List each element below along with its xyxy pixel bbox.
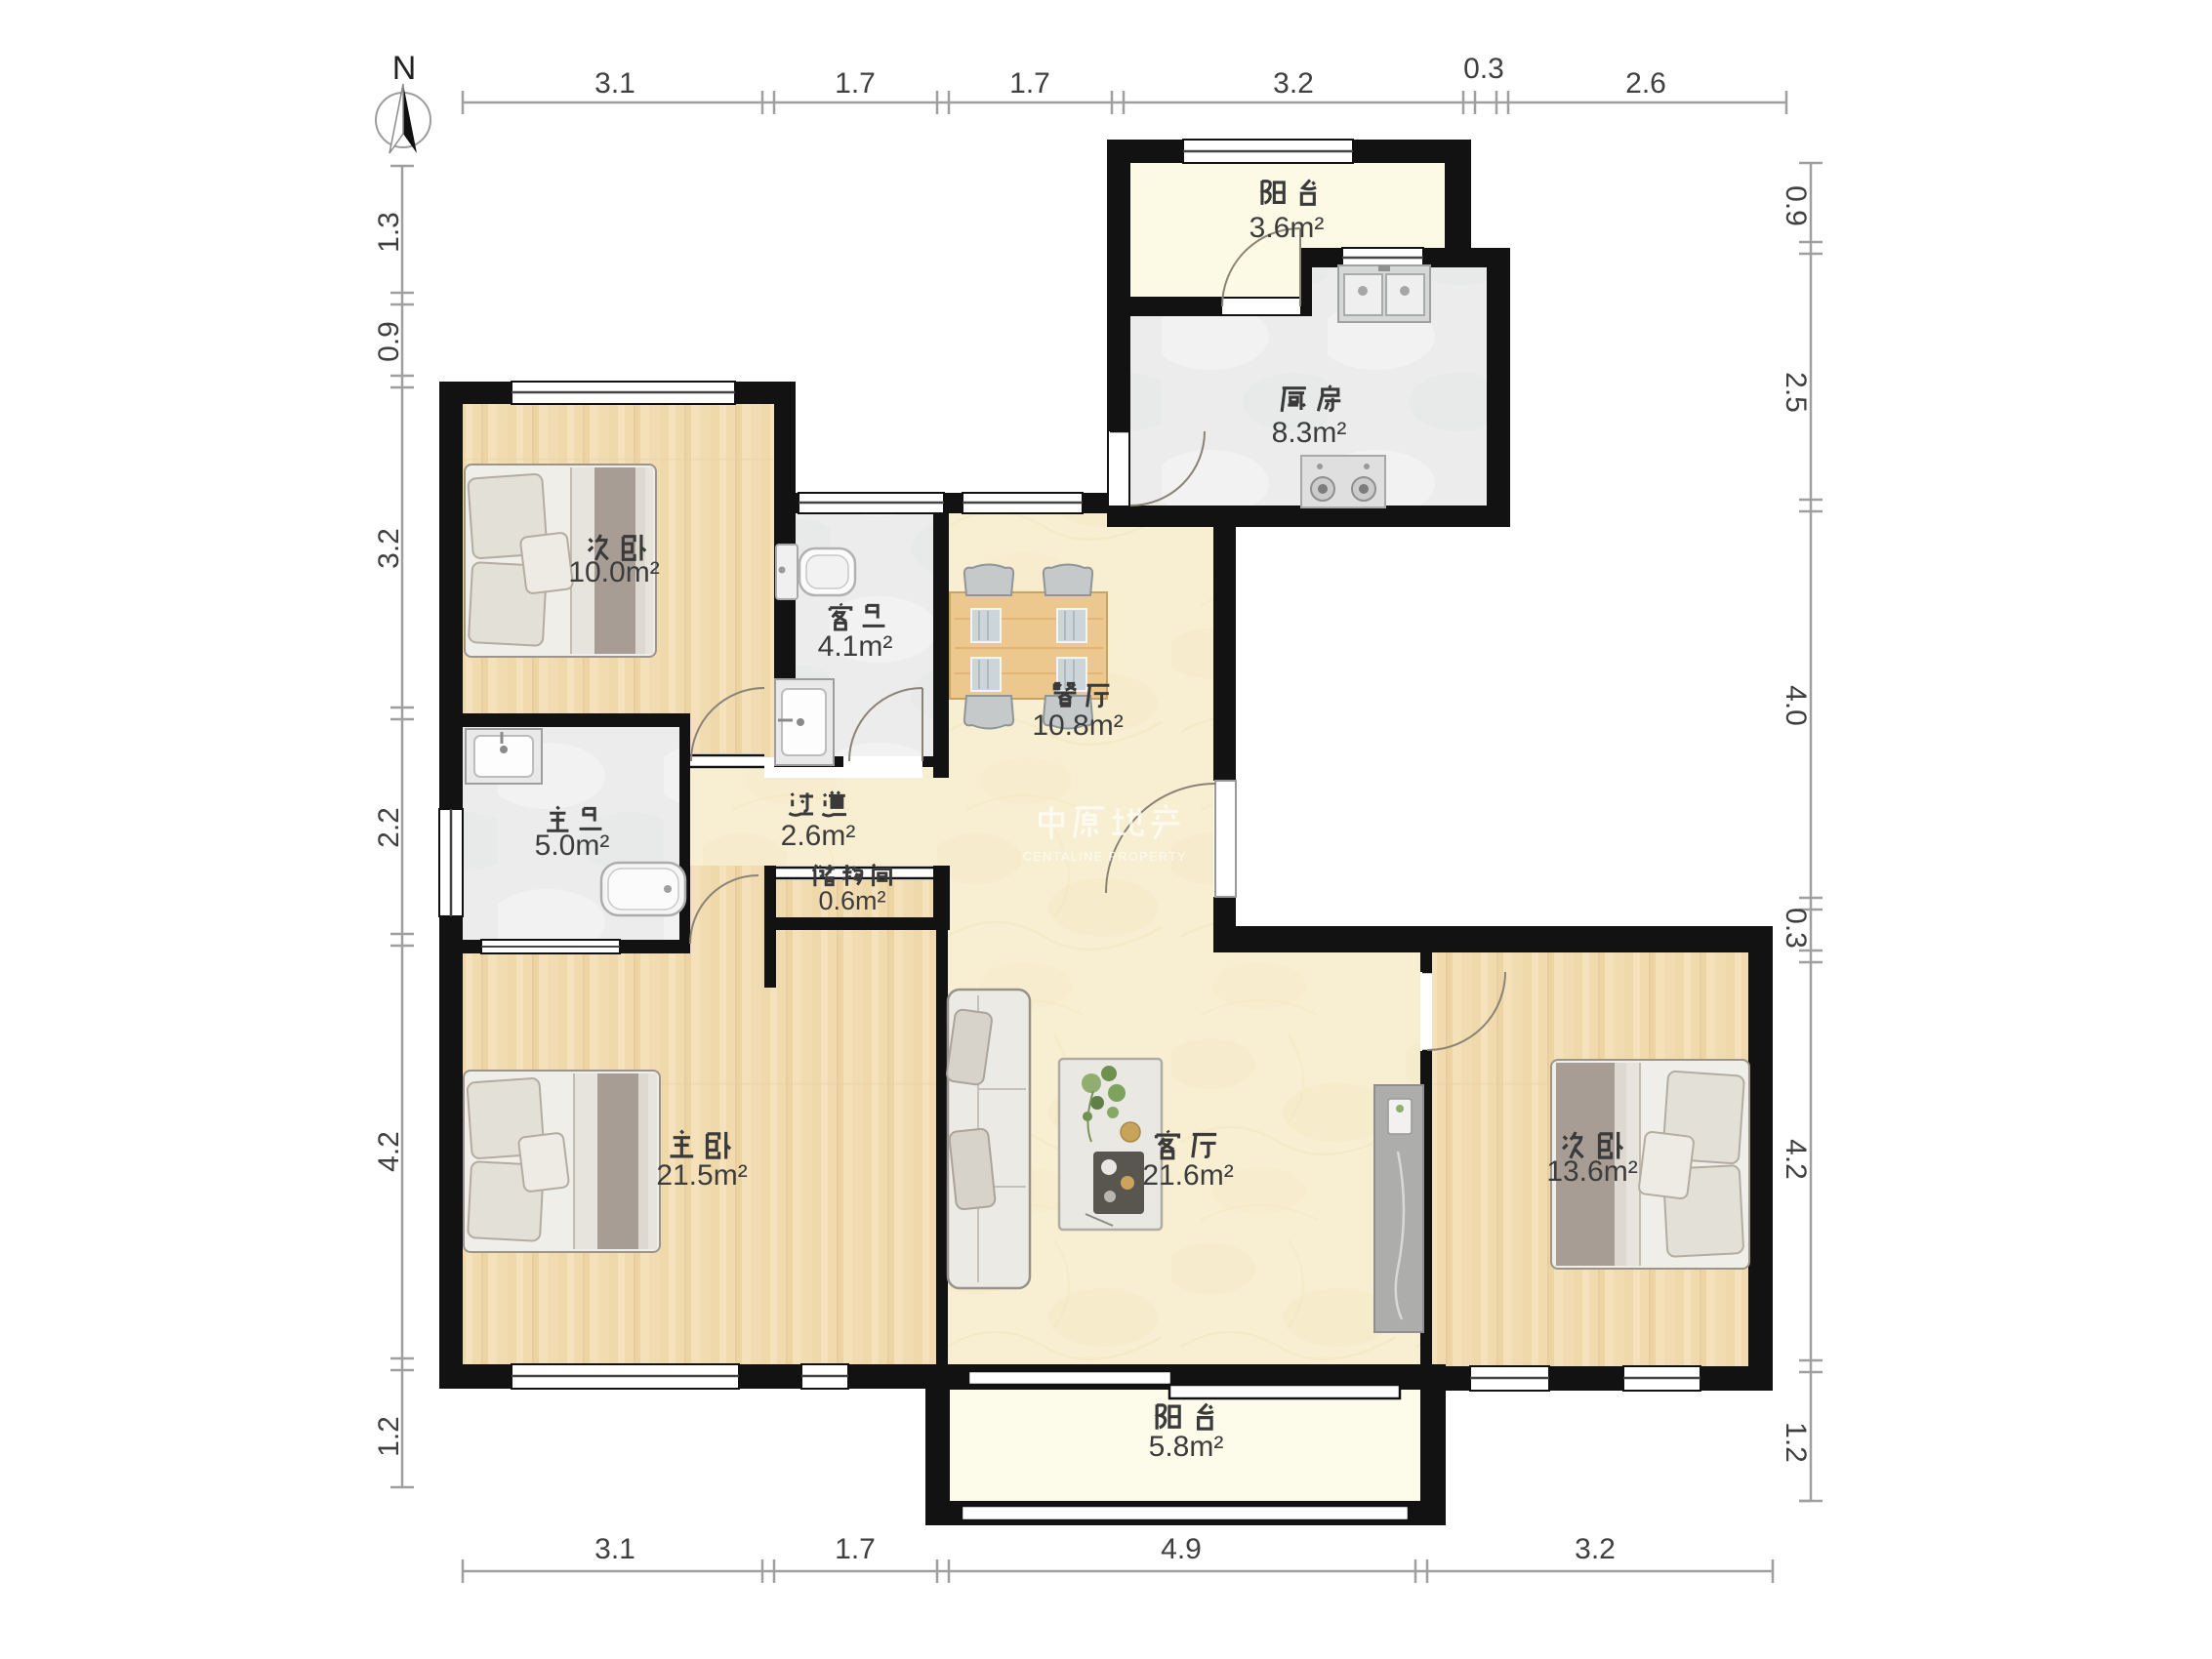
svg-text:5.0m²: 5.0m²: [535, 829, 610, 862]
svg-text:0.3: 0.3: [1780, 908, 1812, 949]
svg-text:10.0m²: 10.0m²: [568, 556, 659, 588]
svg-text:21.6m²: 21.6m²: [1142, 1159, 1233, 1192]
svg-text:N: N: [392, 50, 417, 87]
svg-text:8.3m²: 8.3m²: [1272, 417, 1347, 449]
svg-text:1.2: 1.2: [1780, 1422, 1812, 1463]
svg-text:0.9: 0.9: [1780, 185, 1812, 226]
svg-text:1.3: 1.3: [373, 212, 405, 253]
svg-text:3.6m²: 3.6m²: [1249, 212, 1325, 244]
svg-text:0.3: 0.3: [1463, 53, 1504, 85]
svg-text:4.2: 4.2: [373, 1131, 405, 1172]
svg-text:4.0: 4.0: [1780, 685, 1812, 726]
svg-text:4.9: 4.9: [1161, 1533, 1202, 1565]
svg-text:4.1m²: 4.1m²: [818, 630, 893, 663]
svg-text:0.6m²: 0.6m²: [818, 886, 885, 915]
svg-text:3.1: 3.1: [594, 67, 635, 100]
svg-text:2.5: 2.5: [1780, 372, 1812, 413]
svg-text:13.6m²: 13.6m²: [1546, 1155, 1637, 1188]
svg-text:CENTALINE PROPERTY: CENTALINE PROPERTY: [1023, 850, 1187, 864]
svg-text:1.7: 1.7: [835, 67, 876, 100]
svg-text:0.9: 0.9: [373, 321, 405, 362]
svg-text:2.6m²: 2.6m²: [781, 820, 856, 852]
svg-text:1.2: 1.2: [373, 1416, 405, 1457]
svg-text:3.1: 3.1: [594, 1533, 635, 1565]
svg-text:5.8m²: 5.8m²: [1149, 1431, 1224, 1463]
svg-text:21.5m²: 21.5m²: [656, 1159, 747, 1192]
svg-text:3.2: 3.2: [1273, 67, 1314, 100]
svg-text:4.2: 4.2: [1780, 1139, 1812, 1180]
svg-text:3.2: 3.2: [1575, 1533, 1616, 1565]
svg-text:1.7: 1.7: [835, 1533, 876, 1565]
svg-text:2.6: 2.6: [1625, 67, 1666, 100]
svg-text:10.8m²: 10.8m²: [1032, 709, 1123, 742]
svg-text:1.7: 1.7: [1009, 67, 1050, 100]
svg-text:2.2: 2.2: [373, 807, 405, 848]
svg-text:3.2: 3.2: [373, 528, 405, 569]
